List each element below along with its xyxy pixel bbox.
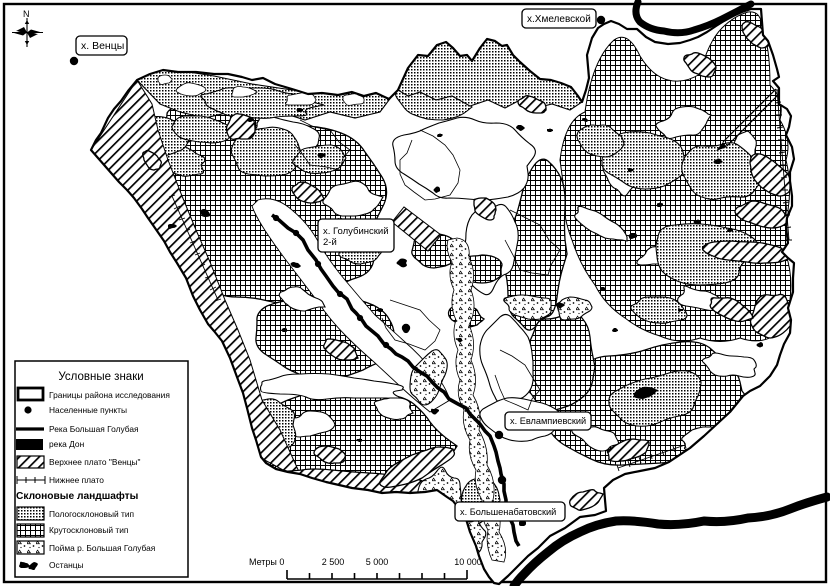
svg-text:N: N bbox=[23, 9, 30, 19]
svg-text:река Дон: река Дон bbox=[49, 439, 85, 449]
svg-text:Река Большая Голубая: Река Большая Голубая bbox=[49, 424, 139, 434]
svg-text:Останцы: Останцы bbox=[49, 560, 84, 570]
svg-text:Верхнее плато "Венцы": Верхнее плато "Венцы" bbox=[49, 457, 141, 467]
svg-text:2 500: 2 500 bbox=[322, 557, 345, 567]
svg-text:10 000: 10 000 bbox=[454, 557, 482, 567]
svg-text:Метры 0: Метры 0 bbox=[249, 557, 284, 567]
svg-text:х.Хмелевской: х.Хмелевской bbox=[527, 14, 591, 25]
svg-text:Склоновые ландшафты: Склоновые ландшафты bbox=[16, 490, 138, 502]
svg-text:Условные знаки: Условные знаки bbox=[58, 371, 143, 383]
svg-text:х. Большенабатовский: х. Большенабатовский bbox=[460, 507, 556, 517]
svg-text:Крутосклоновый тип: Крутосклоновый тип bbox=[49, 525, 128, 535]
svg-text:Пойма р. Большая Голубая: Пойма р. Большая Голубая bbox=[49, 543, 155, 553]
svg-text:х. Венцы: х. Венцы bbox=[81, 40, 124, 52]
svg-text:х. Евлампиевский: х. Евлампиевский bbox=[510, 416, 586, 426]
svg-text:2-й: 2-й bbox=[323, 237, 337, 248]
svg-text:5 000: 5 000 bbox=[366, 557, 389, 567]
svg-text:Нижнее плато: Нижнее плато bbox=[49, 475, 104, 485]
svg-text:Населенные пункты: Населенные пункты bbox=[49, 405, 127, 415]
svg-text:Пологосклоновый тип: Пологосклоновый тип bbox=[49, 509, 134, 519]
svg-text:Границы района исследования: Границы района исследования bbox=[49, 390, 170, 400]
svg-text:х. Голубинский: х. Голубинский bbox=[323, 226, 389, 237]
